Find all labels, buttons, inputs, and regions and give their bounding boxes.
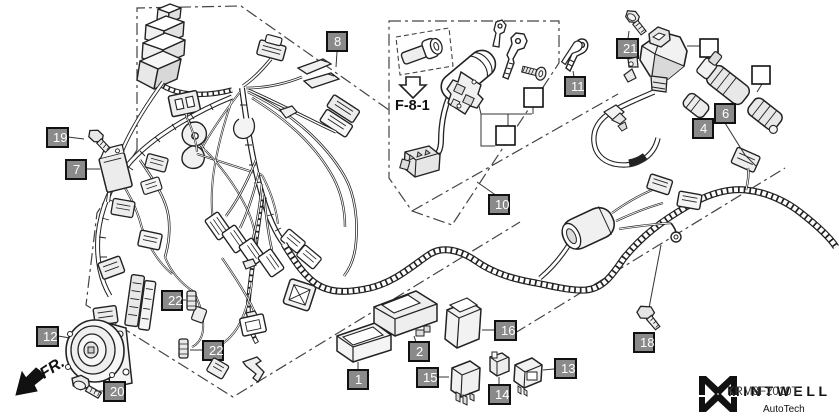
svg-text:20: 20	[110, 384, 124, 399]
svg-text:18: 18	[640, 335, 654, 350]
svg-text:4: 4	[700, 121, 707, 136]
svg-text:2: 2	[416, 344, 423, 359]
svg-text:6: 6	[722, 106, 729, 121]
svg-text:7: 7	[73, 162, 80, 177]
svg-text:11: 11	[571, 79, 585, 94]
svg-text:22: 22	[209, 343, 223, 358]
svg-text:22: 22	[168, 293, 182, 308]
svg-text:13: 13	[561, 361, 575, 376]
svg-text:12: 12	[43, 329, 57, 344]
svg-text:AutoTech: AutoTech	[763, 404, 805, 415]
svg-text:15: 15	[423, 370, 437, 385]
svg-text:1: 1	[355, 372, 362, 387]
svg-text:19: 19	[53, 130, 67, 145]
svg-text:14: 14	[495, 387, 509, 402]
svg-text:16: 16	[501, 323, 515, 338]
svg-text:21: 21	[623, 41, 637, 56]
svg-text:F-8-1: F-8-1	[395, 98, 430, 114]
svg-text:KRM8F2010T: KRM8F2010T	[727, 386, 799, 398]
svg-text:8: 8	[334, 34, 341, 49]
svg-text:10: 10	[495, 197, 509, 212]
